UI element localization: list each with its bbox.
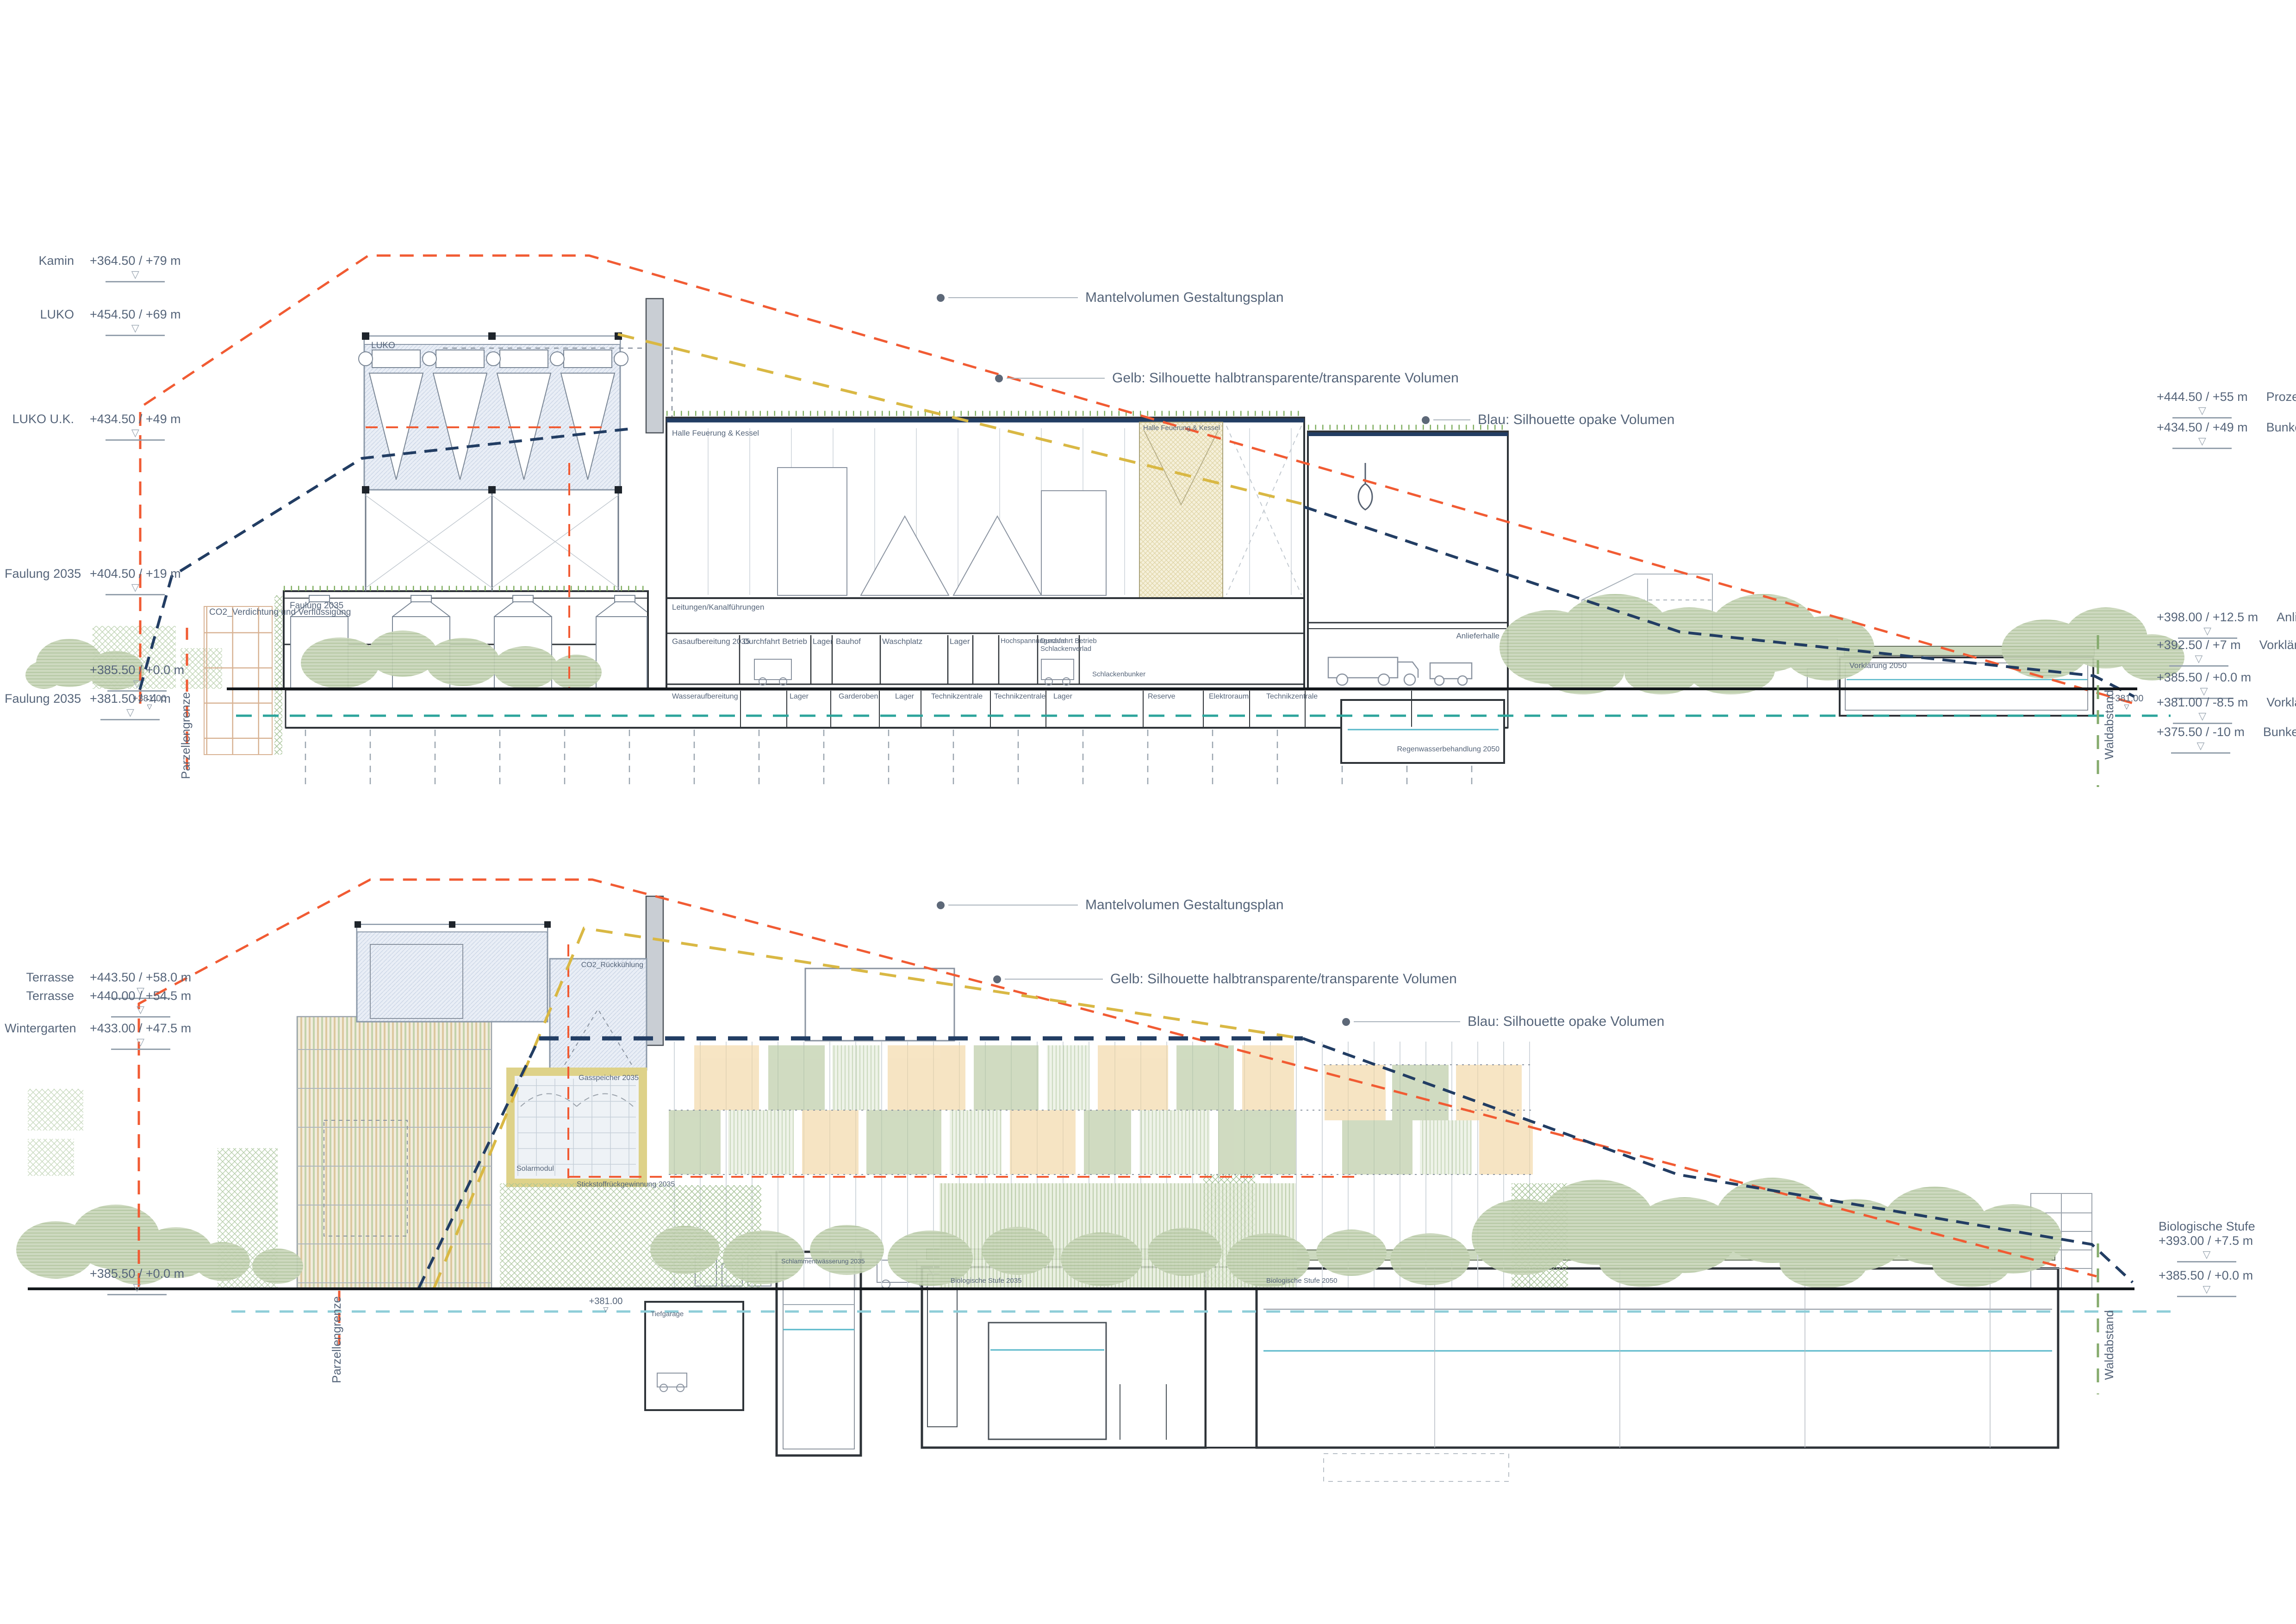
level-marker-icon: ▽ [106, 582, 165, 595]
label-schlammentwaesserung: Schlammentwässerung 2035 [781, 1257, 865, 1265]
level-name: LUKO U.K. [5, 412, 74, 426]
level-row-luko-uk: LUKO U.K. +434.50 / +49 m ▽ [5, 412, 181, 441]
level-row-vorklaerung-minus85: +381.00 / -8.5 m ▽ Vorklärung 2035 [2157, 695, 2296, 724]
level-row-wintergarten: Wintergarten +433.00 / +47.5 m ▽ [5, 1021, 191, 1050]
level-value: +385.50 / +0.0 m [2157, 670, 2251, 685]
level-marker-icon: ▽ [106, 269, 165, 282]
callout-text: Blau: Silhouette opake Volumen [1468, 1014, 1664, 1030]
level-name: Anlieferhalle [2277, 610, 2296, 625]
architectural-sheet: Kamin +364.50 / +79 m ▽ LUKO +454.50 / +… [0, 0, 2296, 1624]
callout-dot-icon [1342, 1018, 1350, 1026]
callout-text: Mantelvolumen Gestaltungsplan [1085, 897, 1284, 913]
label-stickstoff: Stickstoffrückgewinnung 2035 [577, 1181, 675, 1189]
level-marker-icon: ▽ [106, 427, 165, 441]
level-value: +454.50 / +69 m [90, 307, 181, 322]
room-label: Durchfahrt Betrieb Schlackenverlad [1040, 637, 1101, 653]
level-marker-icon: ▽ [2178, 625, 2237, 639]
room-label: Lager [950, 637, 970, 646]
callout-leader [948, 905, 1078, 906]
level-row-ground-bottom-right: +385.50 / +0.0 m ▽ [2159, 1268, 2253, 1297]
level-row-ground-top: +385.50 / +0.0 m ▽ [5, 663, 184, 692]
level-marker-icon: ▽ [2101, 704, 2152, 709]
level-name: Vorklärung 2035 [2266, 695, 2296, 710]
room-label: Elektroraum [1209, 693, 1249, 701]
room-label: Technikzentrale [994, 693, 1045, 701]
room-label: Wasseraufbereitung [672, 693, 738, 701]
callout-dot-icon [937, 294, 945, 302]
top-section [25, 256, 2184, 787]
callout-mantelvolumen-top: Mantelvolumen Gestaltungsplan [937, 290, 1284, 306]
level-value: +393.00 / +7.5 m [2159, 1234, 2255, 1248]
room-label: Lager [895, 693, 914, 701]
level-marker-icon: ▽ [111, 1004, 170, 1018]
level-row-anlieferhalle: +398.00 / +12.5 m ▽ Anlieferhalle [2157, 610, 2296, 639]
callout-gelb-top: Gelb: Silhouette halbtransparente/transp… [995, 370, 1459, 386]
level-row-luko: LUKO +454.50 / +69 m ▽ [5, 307, 181, 336]
level-name: Wintergarten [5, 1021, 74, 1036]
level-value: +364.50 / +79 m [90, 254, 181, 268]
groundwater-marker-top-left: +381.00 ▽ [124, 693, 175, 709]
level-marker-icon: ▽ [124, 704, 175, 709]
level-marker-icon: ▽ [2177, 1284, 2236, 1297]
level-marker-icon: ▽ [2177, 1249, 2236, 1262]
label-vorklaerung-2050: Vorklärung 2050 [1849, 661, 1907, 670]
level-value: +375.50 / -10 m [2157, 725, 2245, 739]
room-label: Lager [813, 637, 833, 646]
label-leitungen: Leitungen/Kanalführungen [672, 603, 764, 612]
room-label: Waschplatz [882, 637, 922, 646]
room-label: Technikzentrale [1266, 693, 1318, 701]
level-marker-icon: ▽ [107, 678, 167, 692]
bottom-section [16, 880, 2171, 1481]
callout-text: Gelb: Silhouette halbtransparente/transp… [1110, 971, 1457, 987]
level-value: +440.00 / +54.5 m [90, 989, 191, 1003]
level-name: Terrasse [5, 989, 74, 1003]
level-marker-icon: ▽ [2173, 711, 2232, 724]
level-marker-icon: ▽ [106, 323, 165, 336]
level-row-vorklaerung-7: +392.50 / +7 m ▽ Vorklärung 2035 [2157, 638, 2296, 667]
level-row-ground-bottom-left: +385.50 / +0.0 m ▽ [5, 1267, 184, 1295]
level-marker-icon: ▽ [2172, 405, 2232, 418]
level-name: Biologische Stufe [2159, 1219, 2255, 1234]
level-name: Terrasse [5, 970, 74, 985]
level-name: LUKO [5, 307, 74, 322]
level-row-kamin: Kamin +364.50 / +79 m ▽ [5, 254, 181, 282]
label-faulung-2035: Faulung 2035 [290, 601, 343, 611]
callout-dot-icon [1422, 416, 1430, 424]
level-marker-icon: ▽ [107, 1282, 167, 1295]
section-drawing [0, 0, 2296, 1624]
level-value: +404.50 / +19 m [90, 567, 181, 581]
label-schlackenbunker: Schlackenbunker [1092, 670, 1145, 678]
level-row-ground-top-right: +385.50 / +0.0 m ▽ [2157, 670, 2270, 699]
label-halle-feuerung-2: Halle Feuerung & Kessel [1143, 424, 1222, 432]
level-row-bunkergebaeude: +434.50 / +49 m ▽ Bunkergebäude [2157, 420, 2296, 449]
level-value: +381.00 / -8.5 m [2157, 695, 2248, 710]
label-anlieferhalle: Anlieferhalle [1407, 631, 1500, 641]
label-parzellengrenze-top: Parzellengrenze [179, 692, 193, 779]
level-value: +392.50 / +7 m [2157, 638, 2241, 652]
callout-leader [1005, 979, 1103, 980]
callout-dot-icon [993, 975, 1001, 983]
room-label: Technikzentrale [931, 693, 983, 701]
callout-leader [1007, 378, 1105, 379]
label-halle-feuerung-1: Halle Feuerung & Kessel [672, 429, 759, 438]
level-value: +444.50 / +55 m [2157, 390, 2248, 404]
level-marker-icon: ▽ [580, 1307, 631, 1312]
label-tiefgarage: Tiefgarage [651, 1310, 684, 1318]
room-label: Lager [1053, 693, 1072, 701]
label-luko: LUKO [371, 341, 395, 351]
level-row-biologische-stufe: Biologische Stufe +393.00 / +7.5 m ▽ [2159, 1219, 2255, 1262]
level-marker-icon: ▽ [111, 1037, 170, 1050]
callout-dot-icon [995, 375, 1003, 382]
level-name: Bunkergebäude [2263, 725, 2296, 739]
callout-mantelvolumen-bottom: Mantelvolumen Gestaltungsplan [937, 897, 1284, 913]
level-value: +434.50 / +49 m [90, 412, 181, 426]
level-name: Bunkergebäude [2266, 420, 2296, 435]
room-label: Gasaufbereitung 2035 [672, 637, 750, 646]
level-row-prozessgebaeude: +444.50 / +55 m ▽ Prozessgebäude [2157, 390, 2296, 418]
room-label: Reserve [1148, 693, 1176, 701]
level-value: +385.50 / +0.0 m [90, 663, 184, 677]
level-value: +385.50 / +0.0 m [90, 1267, 184, 1281]
level-row-faulung-19: Faulung 2035 +404.50 / +19 m ▽ [5, 567, 181, 595]
room-label: Lager [790, 693, 809, 701]
callout-blau-bottom: Blau: Silhouette opake Volumen [1342, 1014, 1664, 1030]
room-label: Bauhof [836, 637, 861, 646]
level-name: Vorklärung 2035 [2259, 638, 2296, 652]
level-marker-icon: ▽ [2169, 653, 2228, 667]
callout-leader [1354, 1021, 1460, 1022]
label-gasspeicher: Gasspeicher 2035 [546, 1074, 639, 1082]
groundwater-marker-bottom: +381.00 ▽ [580, 1296, 631, 1312]
level-name: Kamin [5, 254, 74, 268]
callout-blau-top: Blau: Silhouette opake Volumen [1422, 412, 1674, 428]
label-bio-2035: Biologische Stufe 2035 [951, 1277, 1021, 1285]
level-value: +398.00 / +12.5 m [2157, 610, 2258, 625]
callout-dot-icon [937, 901, 945, 909]
groundwater-marker-top-right: +381.00 ▽ [2101, 693, 2152, 709]
callout-text: Mantelvolumen Gestaltungsplan [1085, 290, 1284, 306]
callout-gelb-bottom: Gelb: Silhouette halbtransparente/transp… [993, 971, 1457, 987]
level-row-terrasse-545: Terrasse +440.00 / +54.5 m ▽ [5, 989, 191, 1018]
label-co2-rueckkuehlung: CO2_Rückkühlung [554, 961, 643, 969]
label-bio-2050: Biologische Stufe 2050 [1266, 1277, 1337, 1285]
level-value: +385.50 / +0.0 m [2159, 1268, 2253, 1283]
level-marker-icon: ▽ [2172, 436, 2232, 449]
level-value: +443.50 / +58.0 m [90, 970, 191, 985]
label-parzellengrenze-bottom: Parzellengrenze [330, 1296, 344, 1383]
level-value: +433.00 / +47.5 m [90, 1021, 191, 1036]
callout-leader [948, 297, 1078, 298]
label-regenwasser: Regenwasserbehandlung 2050 [1379, 745, 1500, 754]
callout-text: Blau: Silhouette opake Volumen [1478, 412, 1674, 428]
callout-text: Gelb: Silhouette halbtransparente/transp… [1112, 370, 1459, 386]
level-value: +434.50 / +49 m [2157, 420, 2248, 435]
level-marker-icon: ▽ [2171, 740, 2230, 754]
room-label: Garderoben [839, 693, 878, 701]
level-name: Prozessgebäude [2266, 390, 2296, 404]
callout-leader [1433, 419, 1470, 420]
level-name: Faulung 2035 [5, 567, 74, 581]
level-row-bunker-minus10: +375.50 / -10 m ▽ Bunkergebäude [2157, 725, 2296, 754]
label-solarmodul: Solarmodul [516, 1165, 554, 1173]
room-label: Durchfahrt Betrieb [743, 637, 807, 646]
label-waldabstand-bottom: Waldabstand [2102, 1310, 2116, 1380]
level-name: Faulung 2035 [5, 692, 74, 706]
